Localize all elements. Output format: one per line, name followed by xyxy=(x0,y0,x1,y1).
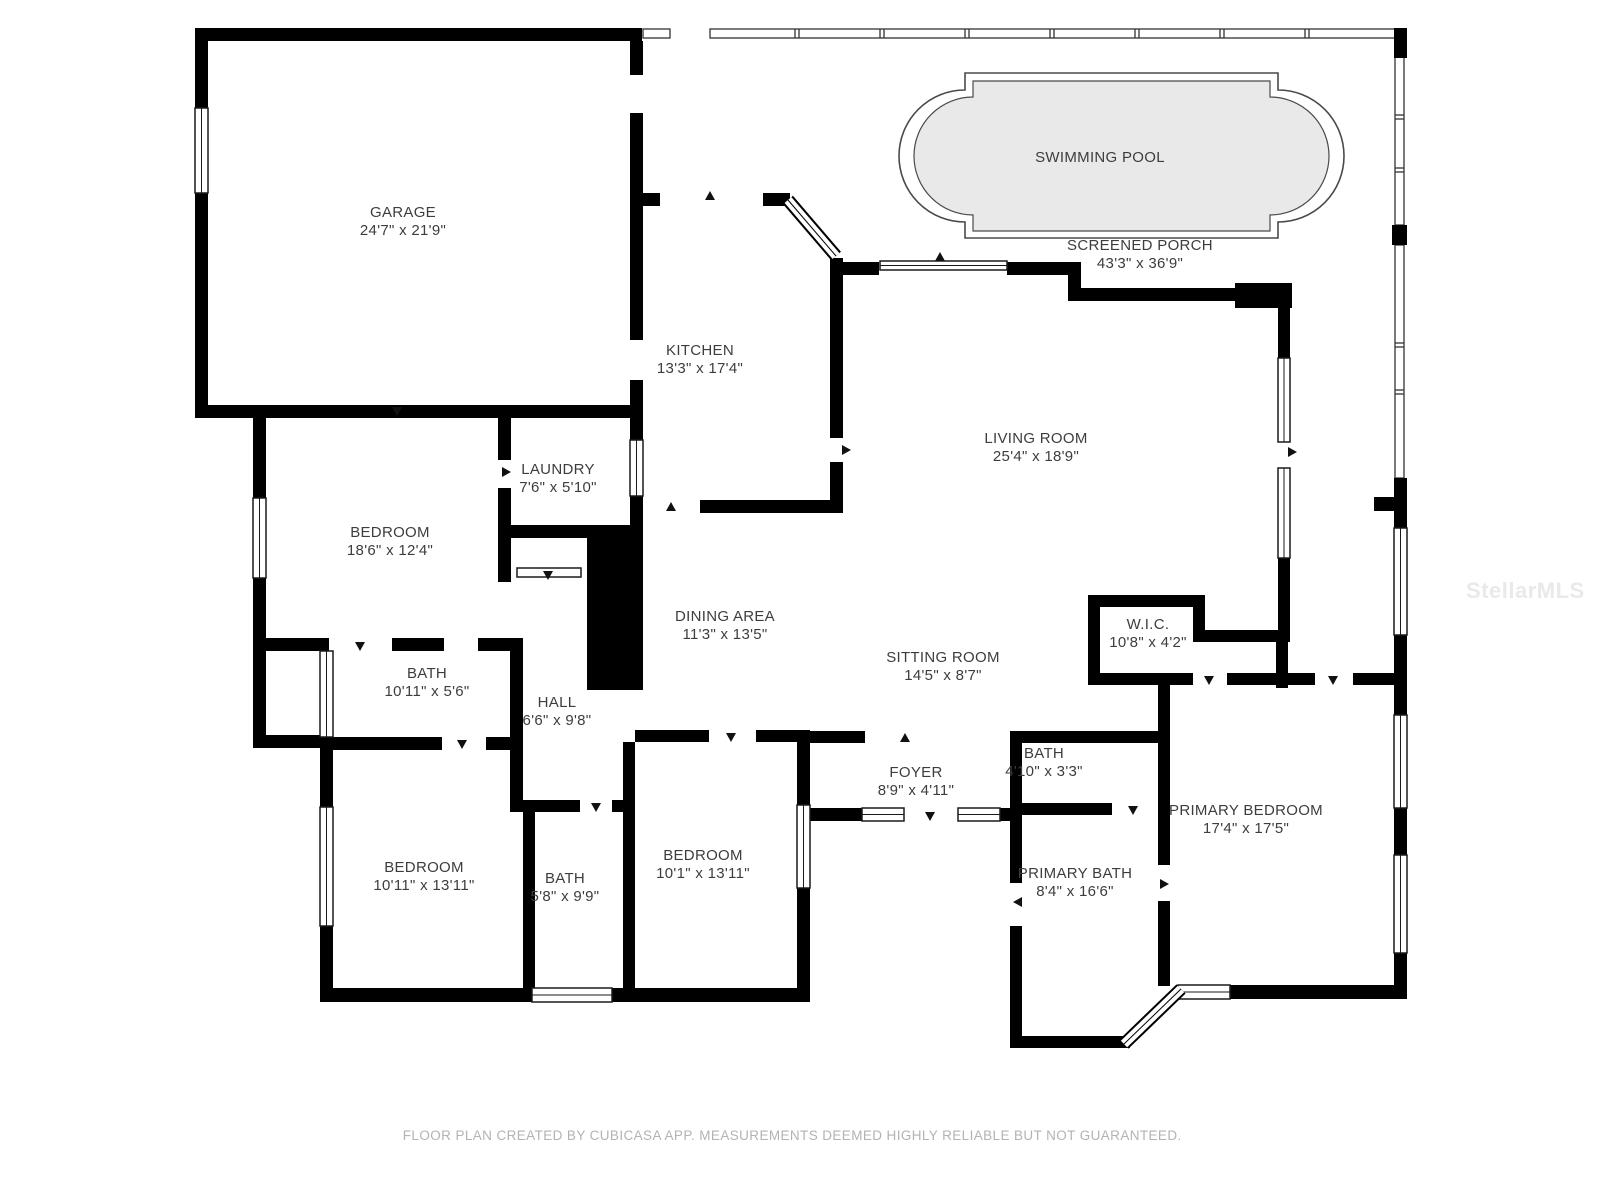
room-label-bedroom-bottom-left: BEDROOM 10'11" x 13'11" xyxy=(373,859,474,895)
stellar-mls-watermark: StellarMLS xyxy=(1466,578,1585,604)
room-label-bath-center: BATH 5'8" x 9'9" xyxy=(531,870,600,906)
room-label-garage: GARAGE 24'7" x 21'9" xyxy=(360,204,446,240)
room-label-dining-area: DINING AREA 11'3" x 13'5" xyxy=(675,608,775,644)
room-label-hall: HALL 6'6" x 9'8" xyxy=(523,694,592,730)
room-label-laundry: LAUNDRY 7'6" x 5'10" xyxy=(519,461,597,497)
floorplan-canvas xyxy=(0,0,1600,1200)
room-label-bedroom-bottom-center: BEDROOM 10'1" x 13'11" xyxy=(656,847,750,883)
room-label-bath-small: BATH 4'10" x 3'3" xyxy=(1005,745,1083,781)
room-label-primary-bath: PRIMARY BATH 8'4" x 16'6" xyxy=(1018,865,1132,901)
room-label-bedroom-left: BEDROOM 18'6" x 12'4" xyxy=(347,524,433,560)
room-label-primary-bedroom: PRIMARY BEDROOM 17'4" x 17'5" xyxy=(1169,802,1323,838)
footer-disclaimer: FLOOR PLAN CREATED BY CUBICASA APP. MEAS… xyxy=(403,1128,1182,1143)
room-label-swimming-pool: SWIMMING POOL xyxy=(1035,149,1165,167)
room-label-screened-porch: SCREENED PORCH 43'3" x 36'9" xyxy=(1067,237,1213,273)
room-label-bath-hall: BATH 10'11" x 5'6" xyxy=(384,665,469,701)
room-label-kitchen: KITCHEN 13'3" x 17'4" xyxy=(657,342,743,378)
room-label-wic: W.I.C. 10'8" x 4'2" xyxy=(1109,616,1187,652)
room-label-sitting-room: SITTING ROOM 14'5" x 8'7" xyxy=(886,649,1000,685)
room-label-living-room: LIVING ROOM 25'4" x 18'9" xyxy=(984,430,1087,466)
floorplan-page: GARAGE 24'7" x 21'9" SWIMMING POOL SCREE… xyxy=(0,0,1600,1200)
room-label-foyer: FOYER 8'9" x 4'11" xyxy=(878,764,954,800)
